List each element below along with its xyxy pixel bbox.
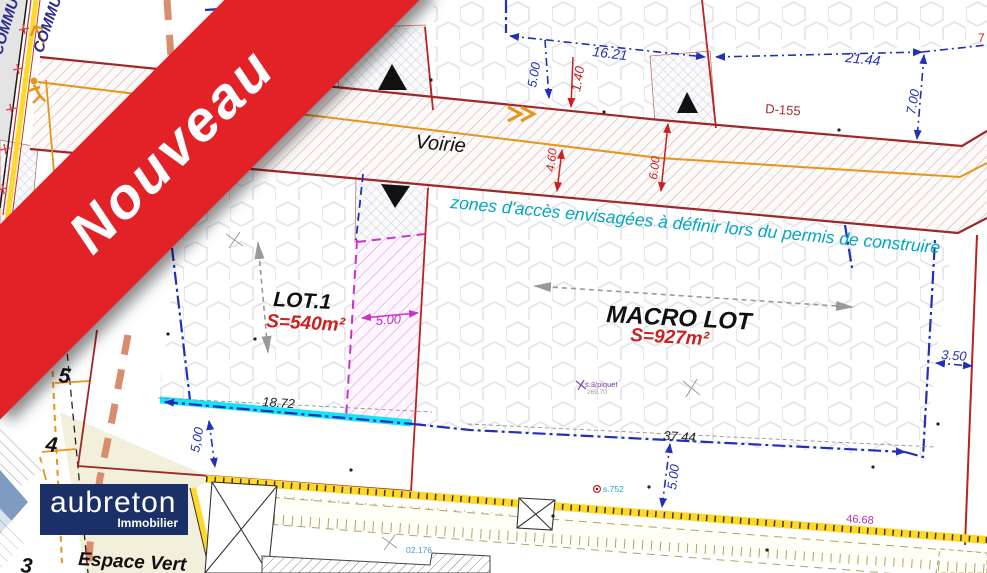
agency-logo-tagline: Immobilier [50,517,178,530]
dim-edge-partial: 7 [978,31,985,45]
dim-1872: 18.72 [262,394,296,411]
piquet-elevation: 269.70 [587,389,607,396]
dim-4668: 46.68 [846,513,874,527]
borne-marker-icon [594,486,601,493]
point-s752: s.752 [603,484,624,494]
lot1-title: LOT.1 [273,288,332,314]
macro-lot-area: S=927m² [630,325,710,350]
dim-500-bottommid: 5.00 [664,463,682,491]
piquet-label: s.3/piquet [585,380,618,389]
dim-3744: 37.44 [663,428,696,445]
dim-600: 6.00 [646,155,663,180]
dim-460: 4.60 [543,147,560,172]
parcel-number-3: 3 [19,554,33,573]
agency-logo-name: aubreton [50,489,178,517]
lot1-area: S=540m² [266,311,346,336]
point-02176: 02.176 [406,545,432,555]
road-label: Voirie [415,131,467,157]
dim-350: 3.50 [941,347,968,364]
dim-500-magenta: 5.00 [375,311,402,328]
agency-logo: aubreton Immobilier [40,484,188,535]
site-plan-image: COMMU COMMU Voirie zones d'accès envisag… [0,0,987,573]
parcel-ref-label: D-155 [765,101,801,118]
